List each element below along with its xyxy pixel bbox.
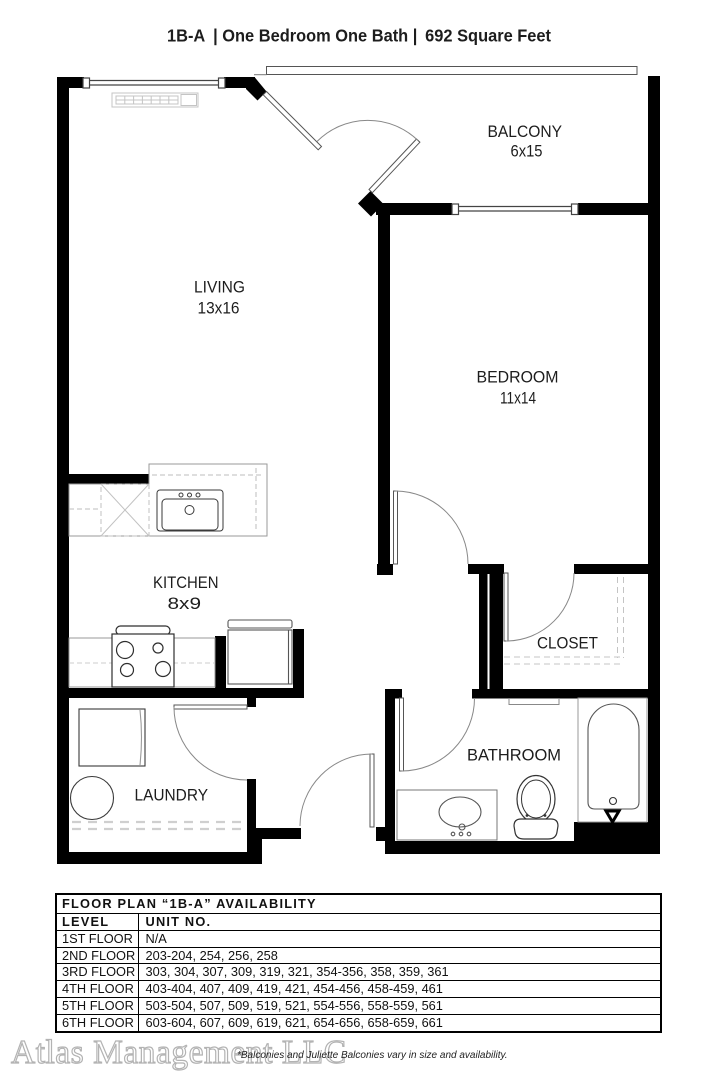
svg-text:LIVING: LIVING — [194, 279, 245, 297]
svg-text:BATHROOM: BATHROOM — [467, 747, 561, 765]
svg-text:KITCHEN: KITCHEN — [153, 574, 219, 592]
svg-text:1B-A | One Bedroom One Bath |: 1B-A | One Bedroom One Bath | 692 Square… — [167, 26, 551, 46]
svg-text:11x14: 11x14 — [500, 390, 536, 408]
svg-text:6x15: 6x15 — [511, 143, 543, 161]
svg-text:13x16: 13x16 — [198, 300, 240, 318]
svg-text:8x9: 8x9 — [168, 595, 202, 613]
svg-text:BALCONY: BALCONY — [488, 123, 563, 141]
svg-text:BEDROOM: BEDROOM — [477, 369, 559, 387]
svg-text:CLOSET: CLOSET — [537, 635, 598, 653]
svg-text:LAUNDRY: LAUNDRY — [135, 787, 209, 805]
